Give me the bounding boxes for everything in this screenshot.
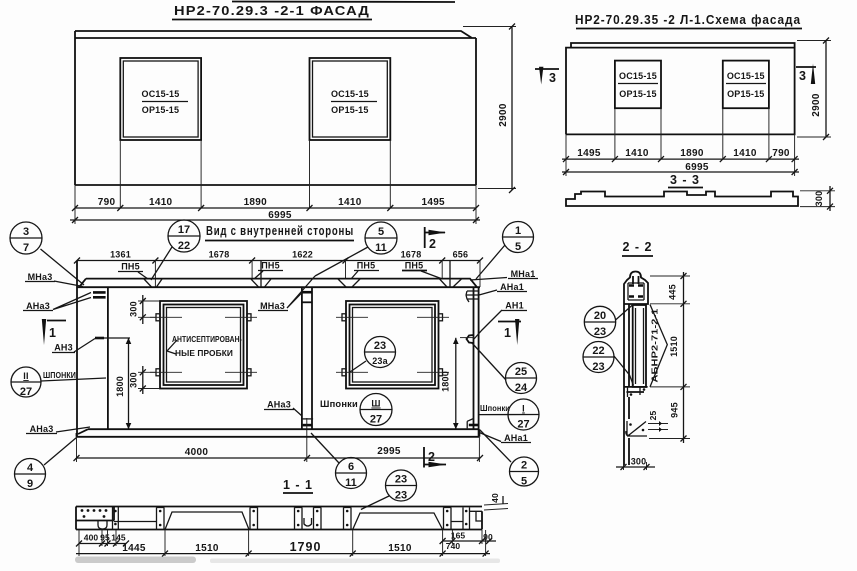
svg-text:5: 5 (515, 241, 521, 253)
svg-text:АНа3: АНа3 (30, 424, 54, 434)
svg-text:ОС15-15: ОС15-15 (727, 71, 765, 81)
svg-text:АНТИСЕПТИРОВАН-: АНТИСЕПТИРОВАН- (172, 334, 242, 344)
svg-text:2995: 2995 (377, 446, 401, 457)
svg-text:6: 6 (348, 461, 354, 473)
svg-text:790: 790 (98, 197, 116, 208)
svg-text:740: 740 (446, 541, 461, 551)
svg-text:1510: 1510 (669, 336, 679, 357)
svg-text:27: 27 (370, 414, 382, 426)
svg-text:АНа1: АНа1 (504, 433, 528, 443)
svg-text:1510: 1510 (195, 543, 219, 554)
svg-text:4000: 4000 (185, 447, 209, 458)
svg-text:1: 1 (504, 326, 512, 340)
svg-text:27: 27 (20, 386, 32, 398)
svg-text:5: 5 (378, 226, 384, 238)
svg-text:11: 11 (375, 242, 387, 254)
svg-text:5: 5 (521, 476, 527, 488)
svg-text:3: 3 (23, 226, 29, 238)
svg-text:АНа1: АНа1 (500, 282, 524, 292)
svg-text:1410: 1410 (625, 148, 649, 159)
svg-text:1410: 1410 (149, 197, 173, 208)
svg-text:ОР15-15: ОР15-15 (331, 105, 368, 115)
svg-text:2: 2 (428, 450, 436, 464)
svg-text:НЫЕ ПРОБКИ: НЫЕ ПРОБКИ (175, 348, 233, 358)
svg-text:1445: 1445 (122, 543, 146, 554)
svg-text:Вид с внутренней стороны: Вид с внутренней стороны (206, 224, 354, 238)
svg-text:ОР15-15: ОР15-15 (727, 89, 764, 99)
svg-text:1361: 1361 (110, 250, 131, 260)
svg-text:1800: 1800 (441, 371, 451, 392)
svg-text:Шпонки: Шпонки (480, 403, 510, 413)
svg-text:Шпонки: Шпонки (320, 399, 358, 409)
svg-text:300: 300 (129, 372, 139, 388)
svg-text:3: 3 (799, 69, 807, 83)
svg-text:25: 25 (515, 366, 527, 378)
svg-text:НР2-70.29.3 -2-1 ФАСАД: НР2-70.29.3 -2-1 ФАСАД (174, 4, 370, 18)
svg-text:23: 23 (592, 361, 604, 373)
svg-text:2: 2 (429, 237, 437, 251)
svg-text:4: 4 (27, 462, 34, 474)
svg-text:2 - 2: 2 - 2 (622, 240, 652, 254)
svg-text:Ш: Ш (371, 399, 380, 409)
svg-text:ОР15-15: ОР15-15 (619, 89, 656, 99)
svg-text:23: 23 (374, 340, 386, 352)
svg-text:11: 11 (345, 477, 357, 489)
svg-text:2900: 2900 (498, 103, 509, 127)
svg-text:НР2-70.29.35 -2 Л-1.Схема фаса: НР2-70.29.35 -2 Л-1.Схема фасада (575, 13, 801, 27)
svg-text:1890: 1890 (244, 197, 268, 208)
svg-text:1678: 1678 (209, 250, 230, 260)
svg-text:27: 27 (517, 419, 529, 431)
svg-text:1495: 1495 (421, 197, 445, 208)
svg-text:ОС15-15: ОС15-15 (331, 89, 369, 99)
svg-text:23: 23 (395, 490, 407, 502)
svg-text:23а: 23а (372, 356, 388, 366)
svg-text:АНа3: АНа3 (267, 400, 291, 410)
svg-text:1800: 1800 (115, 376, 125, 397)
svg-text:300: 300 (814, 191, 824, 207)
svg-text:1622: 1622 (292, 250, 313, 260)
svg-text:90: 90 (483, 532, 493, 542)
svg-text:23: 23 (594, 326, 606, 338)
svg-text:400: 400 (84, 533, 99, 543)
svg-text:АБНР2-71-2-1: АБНР2-71-2-1 (650, 308, 660, 382)
svg-text:АН1: АН1 (505, 301, 524, 311)
svg-text:1678: 1678 (401, 250, 422, 260)
svg-text:3 - 3: 3 - 3 (670, 173, 700, 187)
svg-text:ПН5: ПН5 (405, 261, 424, 271)
svg-text:1 - 1: 1 - 1 (283, 478, 313, 492)
svg-text:ПН5: ПН5 (121, 262, 140, 272)
svg-text:3: 3 (549, 71, 557, 85)
svg-text:ШПОНКИ: ШПОНКИ (43, 370, 76, 380)
svg-text:6995: 6995 (685, 162, 709, 173)
svg-text:ПН5: ПН5 (261, 261, 280, 271)
svg-text:9: 9 (27, 478, 33, 490)
svg-text:МНа3: МНа3 (28, 272, 53, 282)
svg-text:АНа3: АНа3 (26, 301, 50, 311)
svg-text:II: II (23, 371, 28, 381)
svg-text:25: 25 (648, 411, 658, 421)
svg-text:2: 2 (521, 460, 527, 472)
svg-text:790: 790 (772, 148, 790, 159)
svg-text:945: 945 (670, 402, 680, 418)
svg-text:1: 1 (515, 225, 521, 237)
svg-text:23: 23 (395, 474, 407, 486)
svg-text:АН3: АН3 (54, 343, 73, 353)
svg-text:1410: 1410 (733, 148, 757, 159)
svg-text:7: 7 (23, 242, 29, 254)
svg-text:1890: 1890 (680, 148, 704, 159)
svg-text:1410: 1410 (338, 197, 362, 208)
svg-text:1510: 1510 (388, 543, 412, 554)
svg-text:17: 17 (178, 224, 190, 236)
svg-text:1495: 1495 (577, 148, 601, 159)
svg-text:22: 22 (592, 345, 604, 357)
svg-text:ОС15-15: ОС15-15 (619, 71, 657, 81)
svg-text:1: 1 (49, 326, 57, 340)
svg-text:656: 656 (453, 250, 469, 260)
svg-text:I: I (522, 404, 525, 414)
svg-text:300: 300 (129, 301, 139, 317)
svg-text:МНа3: МНа3 (260, 301, 285, 311)
svg-text:300: 300 (631, 457, 647, 467)
svg-text:165: 165 (451, 531, 466, 541)
svg-text:2900: 2900 (811, 93, 822, 117)
svg-text:ОР15-15: ОР15-15 (142, 105, 179, 115)
svg-text:40: 40 (490, 493, 500, 503)
svg-text:1790: 1790 (290, 540, 322, 554)
svg-text:ПН5: ПН5 (357, 261, 376, 271)
svg-text:445: 445 (668, 284, 678, 300)
svg-text:24: 24 (515, 382, 528, 394)
svg-text:20: 20 (594, 310, 606, 322)
svg-text:6995: 6995 (268, 210, 292, 221)
svg-text:МНа1: МНа1 (511, 269, 536, 279)
svg-text:ОС15-15: ОС15-15 (142, 89, 180, 99)
svg-text:22: 22 (178, 240, 190, 252)
